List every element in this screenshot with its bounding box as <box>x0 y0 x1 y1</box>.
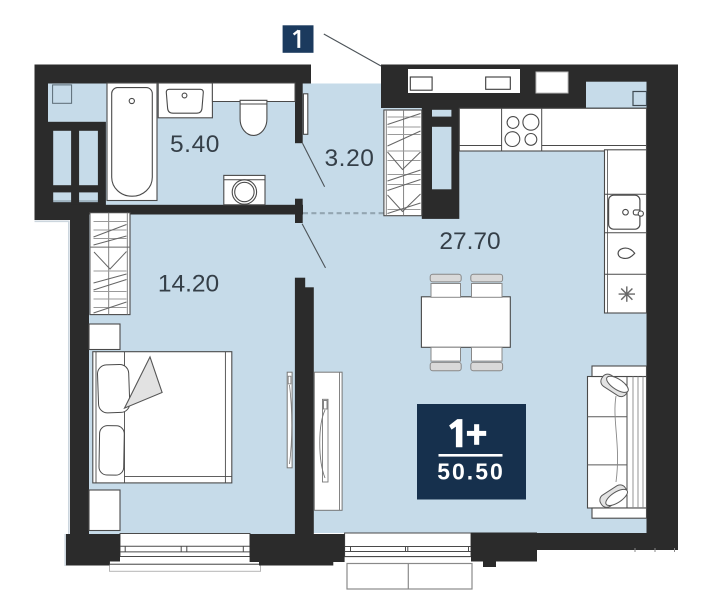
svg-text:50.50: 50.50 <box>437 459 505 485</box>
svg-text:5.40: 5.40 <box>170 131 220 158</box>
svg-text:27.70: 27.70 <box>439 228 500 255</box>
svg-text:3.20: 3.20 <box>324 145 374 172</box>
svg-text:14.20: 14.20 <box>158 271 219 298</box>
